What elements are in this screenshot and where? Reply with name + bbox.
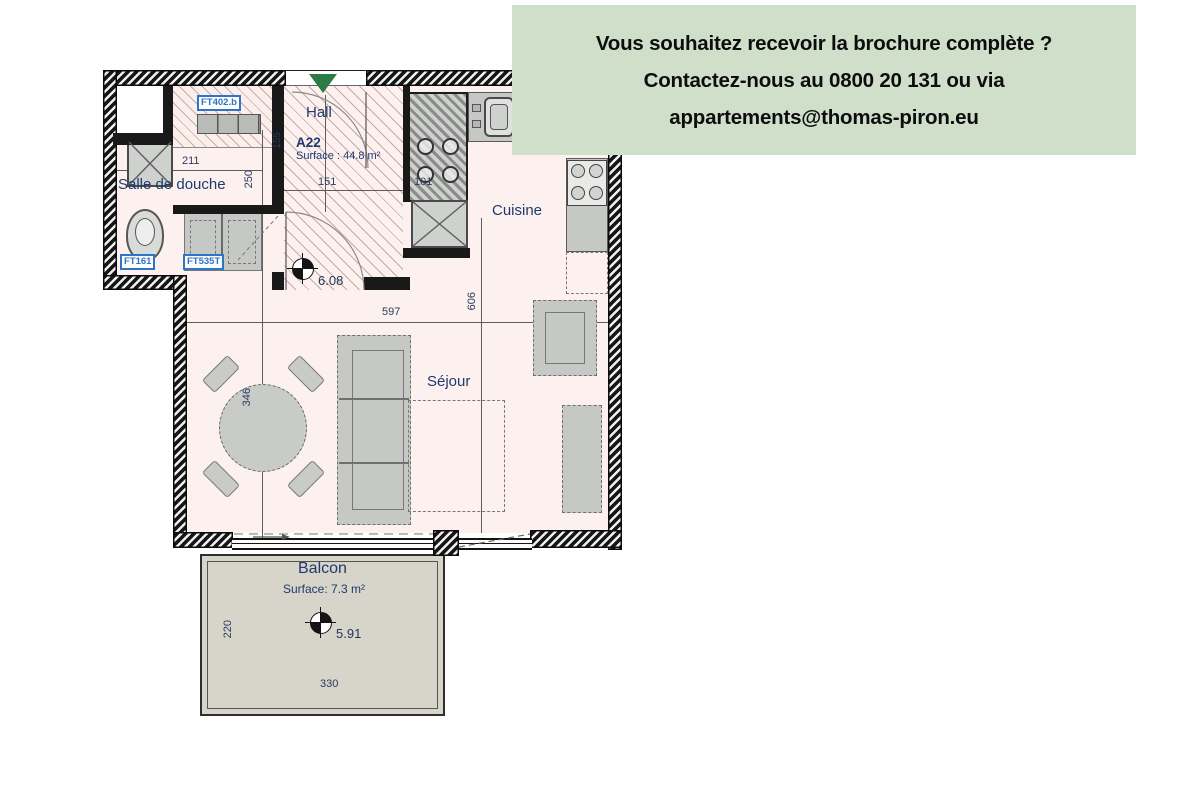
banner-line-2: Contactez-nous au 0800 20 131 ou via (644, 62, 1005, 99)
dim-330: 330 (320, 678, 338, 690)
sofa-seat (352, 350, 404, 510)
room-label-kitchen: Cuisine (492, 202, 542, 219)
burner-icon (571, 164, 585, 178)
banner-line-3: appartements@thomas-piron.eu (669, 99, 978, 136)
fixture-tag: FT161 (120, 254, 155, 270)
dim-346: 346 (241, 388, 253, 406)
dim-line-250-346 (262, 130, 263, 540)
room-label-hall: Hall (306, 104, 332, 121)
unit-surface: Surface : 44.8 m² (296, 150, 380, 162)
wall-hall-sejour-stub (364, 277, 410, 290)
wall-left (103, 70, 117, 290)
faucet-icon (472, 120, 481, 128)
dim-220: 220 (222, 620, 234, 638)
entrance-arrow-icon (309, 74, 337, 93)
appliance-x-box (411, 200, 468, 248)
floorplan-page: 6.08 5.91 Salle de douche Hall A22 Surfa… (0, 0, 1200, 800)
level-value-balcony: 5.91 (336, 626, 361, 641)
level-marker-icon (292, 258, 314, 280)
room-label-bathroom: Salle de douche (118, 176, 226, 193)
fixture-tag: FT535T (183, 254, 224, 270)
window-glass-line (232, 543, 532, 544)
dim-151: 151 (318, 176, 336, 188)
kitchen-low-wall (403, 248, 470, 258)
room-label-living: Séjour (427, 373, 470, 390)
washer-drum (228, 220, 256, 264)
duct-niche (117, 86, 163, 133)
balcony-area (200, 554, 445, 716)
burner-icon (589, 186, 603, 200)
burner-icon (442, 138, 459, 155)
window-pier (433, 530, 459, 556)
rug-outline (408, 400, 505, 512)
balcony-surface: Surface: 7.3 m² (283, 582, 365, 596)
niche-wall-bottom (113, 133, 173, 145)
dim-250: 250 (243, 170, 255, 188)
brochure-banner: Vous souhaitez recevoir la brochure comp… (512, 5, 1136, 155)
faucet-icon (472, 104, 481, 112)
sofa-cushion-line (339, 462, 409, 464)
burner-icon (571, 186, 585, 200)
dim-606: 606 (466, 292, 478, 310)
wall-bottom-right (530, 530, 622, 548)
room-label-balcony: Balcon (298, 560, 347, 578)
wall-sejour-left (173, 275, 187, 545)
wall-bath-hall (272, 86, 284, 214)
armchair-seat (545, 312, 585, 364)
sofa-cushion-line (339, 398, 409, 400)
fixture-tag: FT402.b (197, 95, 241, 111)
wall-bath-hall-stub (272, 272, 284, 290)
level-value-main: 6.08 (318, 273, 343, 288)
level-marker-icon (310, 612, 332, 634)
banner-line-1: Vous souhaitez recevoir la brochure comp… (596, 25, 1052, 62)
burner-icon (442, 166, 459, 183)
dim-597: 597 (382, 306, 400, 318)
burner-icon (589, 164, 603, 178)
burner-icon (417, 138, 434, 155)
sink-basin (490, 104, 508, 130)
window-band (232, 538, 532, 550)
wall-top-left (103, 70, 286, 86)
unit-code: A22 (296, 135, 321, 150)
dim-101: 101 (414, 176, 432, 188)
dim-211: 211 (182, 155, 200, 167)
sideboard-icon (562, 405, 602, 513)
kitchen-counter-dashed (566, 252, 608, 294)
dim-155: 155 (272, 132, 283, 149)
wall-washer-niche (173, 205, 272, 214)
radiator-icon (197, 114, 261, 134)
dining-table-icon (219, 384, 307, 472)
wall-hall-kitchen (403, 86, 410, 202)
wall-bottom-left (173, 532, 233, 548)
outside-mask (100, 290, 173, 535)
toilet-bowl (135, 218, 155, 246)
